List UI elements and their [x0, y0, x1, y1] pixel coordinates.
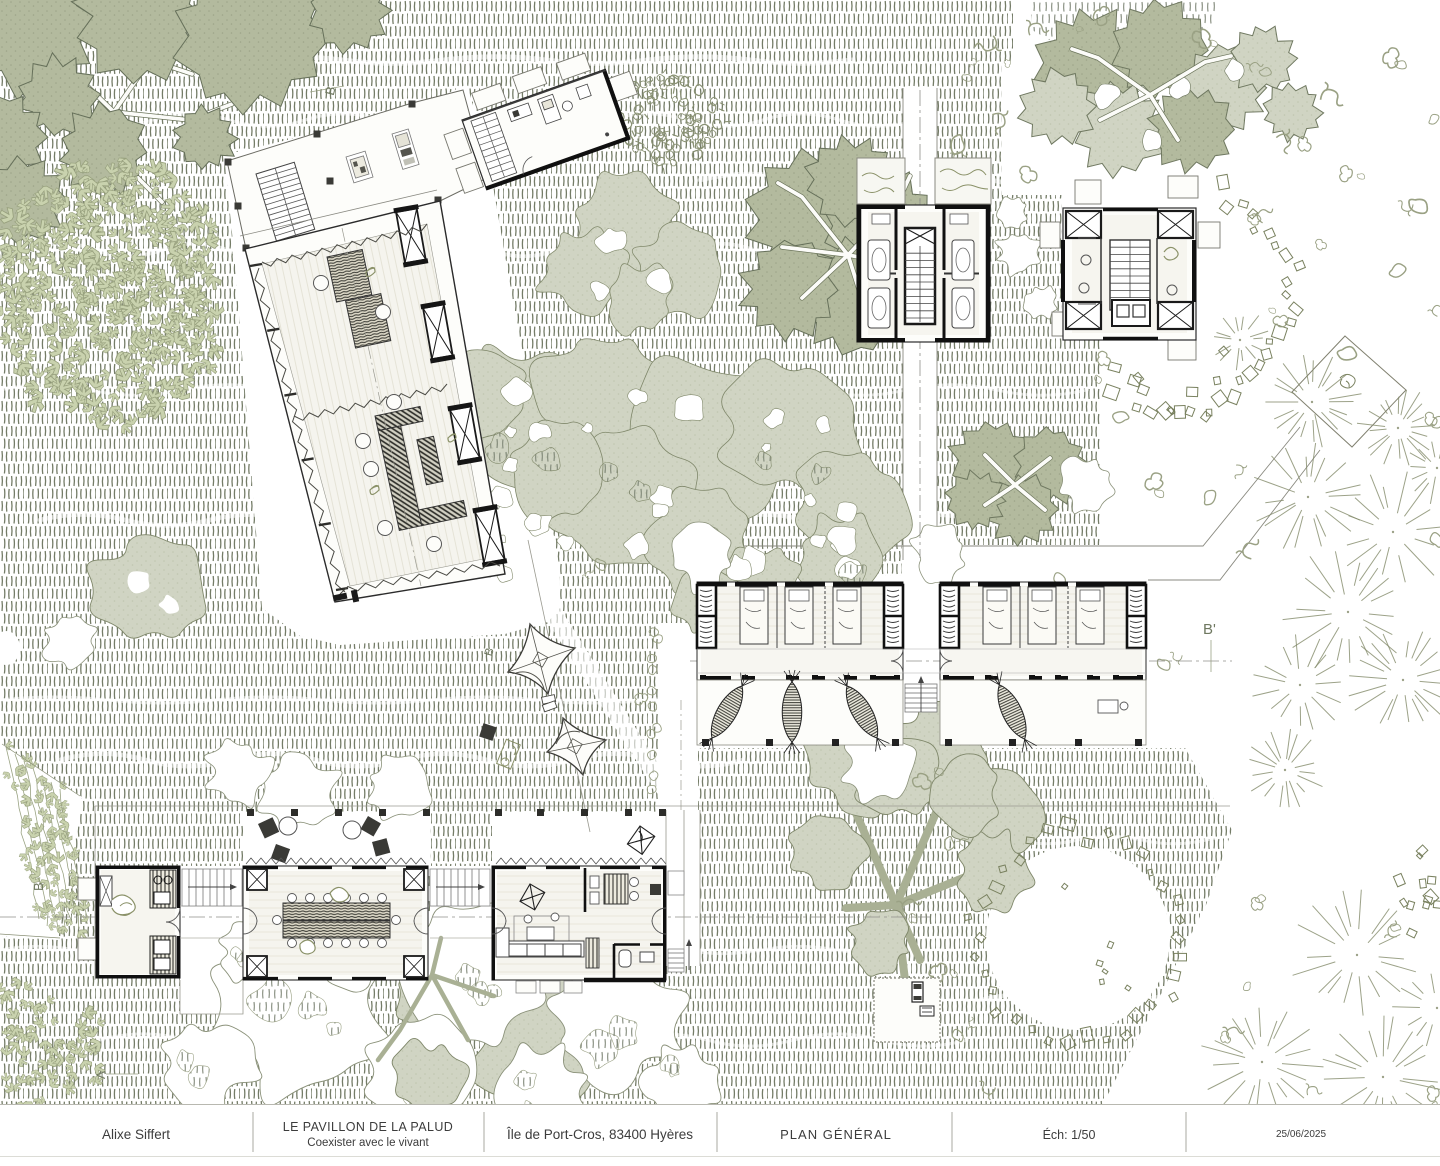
svg-text:PLAN GÉNÉRAL: PLAN GÉNÉRAL	[780, 1127, 892, 1142]
svg-text:Coexister avec le vivant: Coexister avec le vivant	[307, 1137, 429, 1149]
svg-text:25/06/2025: 25/06/2025	[1276, 1129, 1326, 1140]
svg-text:LE PAVILLON DE LA PALUD: LE PAVILLON DE LA PALUD	[283, 1120, 453, 1134]
svg-text:A: A	[94, 1071, 108, 1079]
svg-text:Alixe Siffert: Alixe Siffert	[102, 1127, 170, 1142]
svg-text:Île de Port-Cros, 83400 Hyères: Île de Port-Cros, 83400 Hyères	[506, 1127, 693, 1142]
svg-text:Éch: 1/50: Éch: 1/50	[1043, 1127, 1096, 1142]
svg-text:B': B'	[1203, 621, 1216, 638]
svg-text:B: B	[31, 882, 46, 891]
